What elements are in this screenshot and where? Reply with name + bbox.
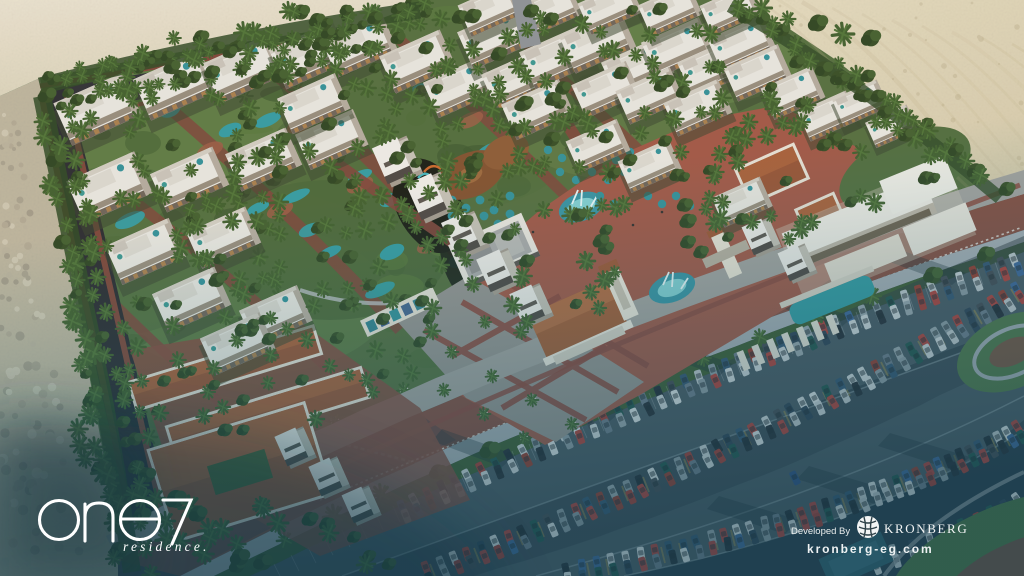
- svg-text:KRONBERG: KRONBERG: [884, 521, 968, 536]
- svg-text:Developed By: Developed By: [791, 526, 850, 537]
- svg-text:residence.: residence.: [123, 539, 210, 554]
- svg-text:kronberg-eg.com: kronberg-eg.com: [807, 542, 934, 556]
